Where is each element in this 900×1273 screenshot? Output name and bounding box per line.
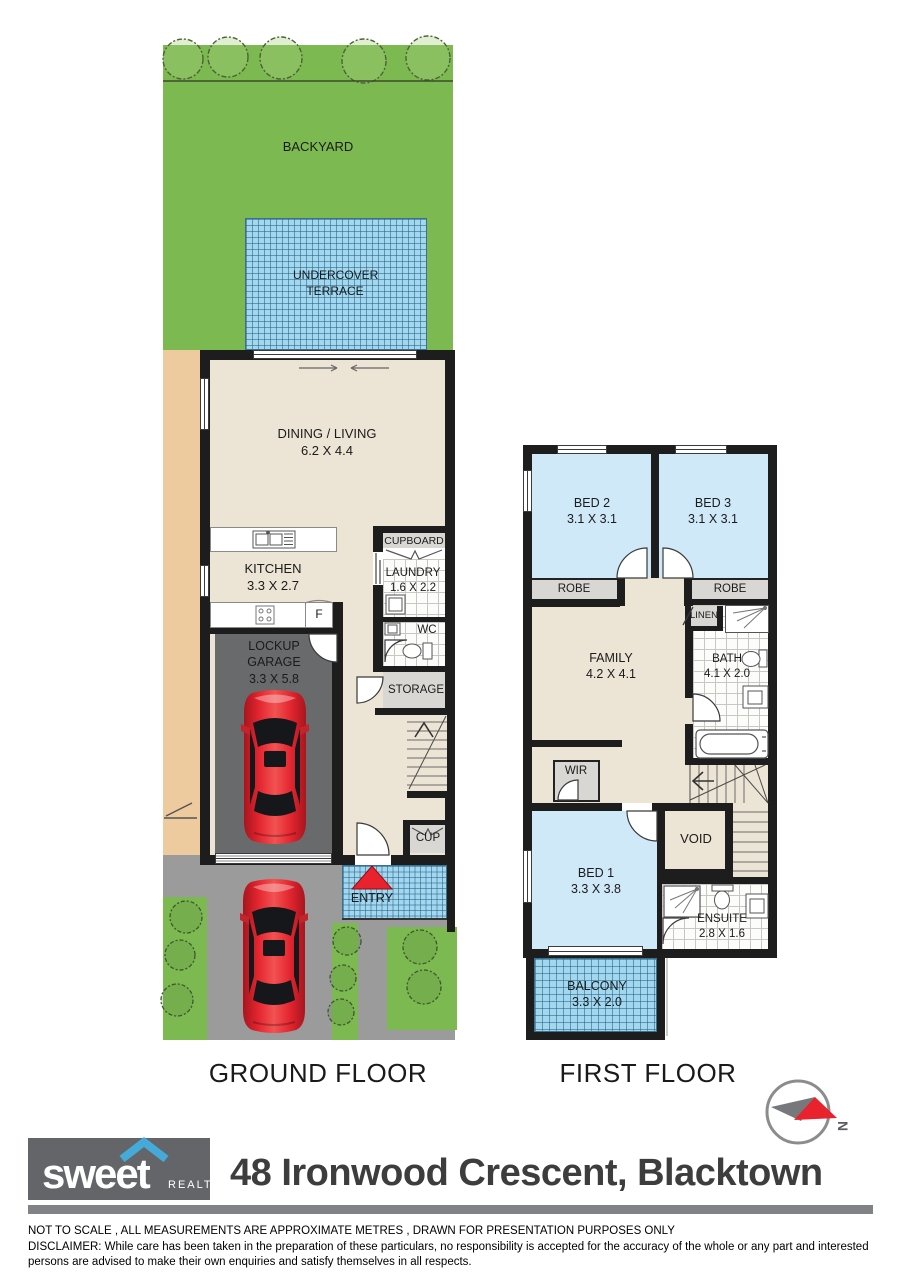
cupboard-rail-area bbox=[383, 548, 445, 559]
room-label-garage: LOCKUP GARAGE3.3 X 5.8 bbox=[241, 638, 307, 687]
room-label-bath: BATH4.1 X 2.0 bbox=[704, 652, 750, 682]
room-label-cupboard: CUPBOARD bbox=[384, 535, 444, 549]
room-label-robe-right: ROBE bbox=[714, 582, 747, 597]
window bbox=[200, 565, 209, 597]
room-label-bed2: BED 23.1 X 3.1 bbox=[567, 495, 617, 528]
compass-icon: N bbox=[767, 1081, 851, 1143]
window bbox=[675, 445, 727, 454]
sliding-window-balcony bbox=[548, 946, 643, 956]
room-label-robe-left: ROBE bbox=[558, 582, 591, 597]
wall-segment bbox=[526, 1032, 665, 1040]
room-label-bed3: BED 33.1 X 3.1 bbox=[688, 495, 738, 528]
garage-door bbox=[215, 853, 332, 864]
room-label-wir: WIR bbox=[565, 764, 587, 779]
room-label-laundry: LAUNDRY1.6 X 2.2 bbox=[386, 566, 441, 596]
window bbox=[523, 470, 532, 512]
wall-segment bbox=[651, 454, 659, 578]
garden-strip-left bbox=[163, 897, 207, 1040]
room-label-cup: CUP bbox=[416, 831, 440, 846]
first-floor-title: FIRST FLOOR bbox=[560, 1058, 737, 1089]
bed1-door-gap bbox=[622, 803, 652, 811]
laundry-slider-gap bbox=[373, 552, 383, 585]
wall-segment bbox=[375, 708, 455, 715]
room-label-ensuite: ENSUITE2.8 X 1.6 bbox=[697, 912, 747, 942]
wall-segment bbox=[685, 758, 768, 765]
footer-divider-bar bbox=[28, 1205, 873, 1214]
room-label-wc: WC bbox=[417, 623, 436, 638]
room-label-terrace: UNDERCOVER TERRACE bbox=[293, 268, 377, 299]
window bbox=[200, 378, 209, 430]
property-address: 48 Ironwood Crescent, Blacktown bbox=[230, 1152, 823, 1195]
wall-segment bbox=[373, 526, 383, 670]
front-door-gap bbox=[355, 855, 391, 865]
fridge-label: F bbox=[315, 607, 322, 623]
garden-strip-right bbox=[387, 927, 457, 1030]
ground-floor-title: GROUND FLOOR bbox=[209, 1058, 427, 1089]
room-label-bed1: BED 13.3 X 3.8 bbox=[571, 865, 621, 898]
wall-segment bbox=[657, 877, 768, 884]
stairs-ground-area bbox=[407, 715, 447, 791]
wall-segment bbox=[407, 791, 455, 798]
window bbox=[523, 850, 532, 903]
wall-segment bbox=[532, 740, 622, 747]
room-label-dining: DINING / LIVING6.2 X 4.4 bbox=[278, 426, 377, 460]
compass-north-label: N bbox=[835, 1121, 851, 1131]
sliding-door bbox=[253, 350, 417, 359]
side-path-area bbox=[163, 350, 200, 855]
wall-segment bbox=[691, 626, 723, 631]
wall-segment bbox=[526, 950, 534, 1040]
room-label-kitchen: KITCHEN3.3 X 2.7 bbox=[244, 561, 301, 595]
scale-note: NOT TO SCALE , ALL MEASUREMENTS ARE APPR… bbox=[28, 1224, 888, 1239]
room-label-void: VOID bbox=[680, 831, 712, 848]
disclaimer-text: DISCLAIMER: While care has been taken in… bbox=[28, 1240, 890, 1270]
room-label-storage: STORAGE bbox=[388, 683, 444, 698]
room-label-family: FAMILY4.2 X 4.1 bbox=[586, 650, 636, 683]
room-label-entry: ENTRY bbox=[351, 890, 393, 906]
wall-segment bbox=[657, 950, 665, 1040]
wall-segment bbox=[332, 628, 343, 865]
floorplan-page: N BACKYARD UNDERCOVER TERRACE DINING / L… bbox=[0, 0, 900, 1273]
room-label-backyard: BACKYARD bbox=[283, 139, 354, 156]
room-label-balcony: BALCONY3.3 X 2.0 bbox=[567, 978, 627, 1011]
brand-name: sweet bbox=[42, 1150, 149, 1198]
wall-segment bbox=[373, 526, 445, 533]
wall-segment bbox=[447, 855, 455, 932]
room-label-linen: LINEN bbox=[690, 610, 718, 622]
shower-bath bbox=[725, 605, 769, 633]
brand-subtitle: REALTY bbox=[168, 1179, 222, 1191]
wall-segment bbox=[403, 820, 410, 855]
window bbox=[557, 445, 607, 454]
garden-strip-middle bbox=[332, 923, 358, 1040]
kitchen-island bbox=[210, 527, 337, 552]
bath-door-gap bbox=[685, 698, 693, 724]
wall-segment bbox=[532, 599, 620, 607]
